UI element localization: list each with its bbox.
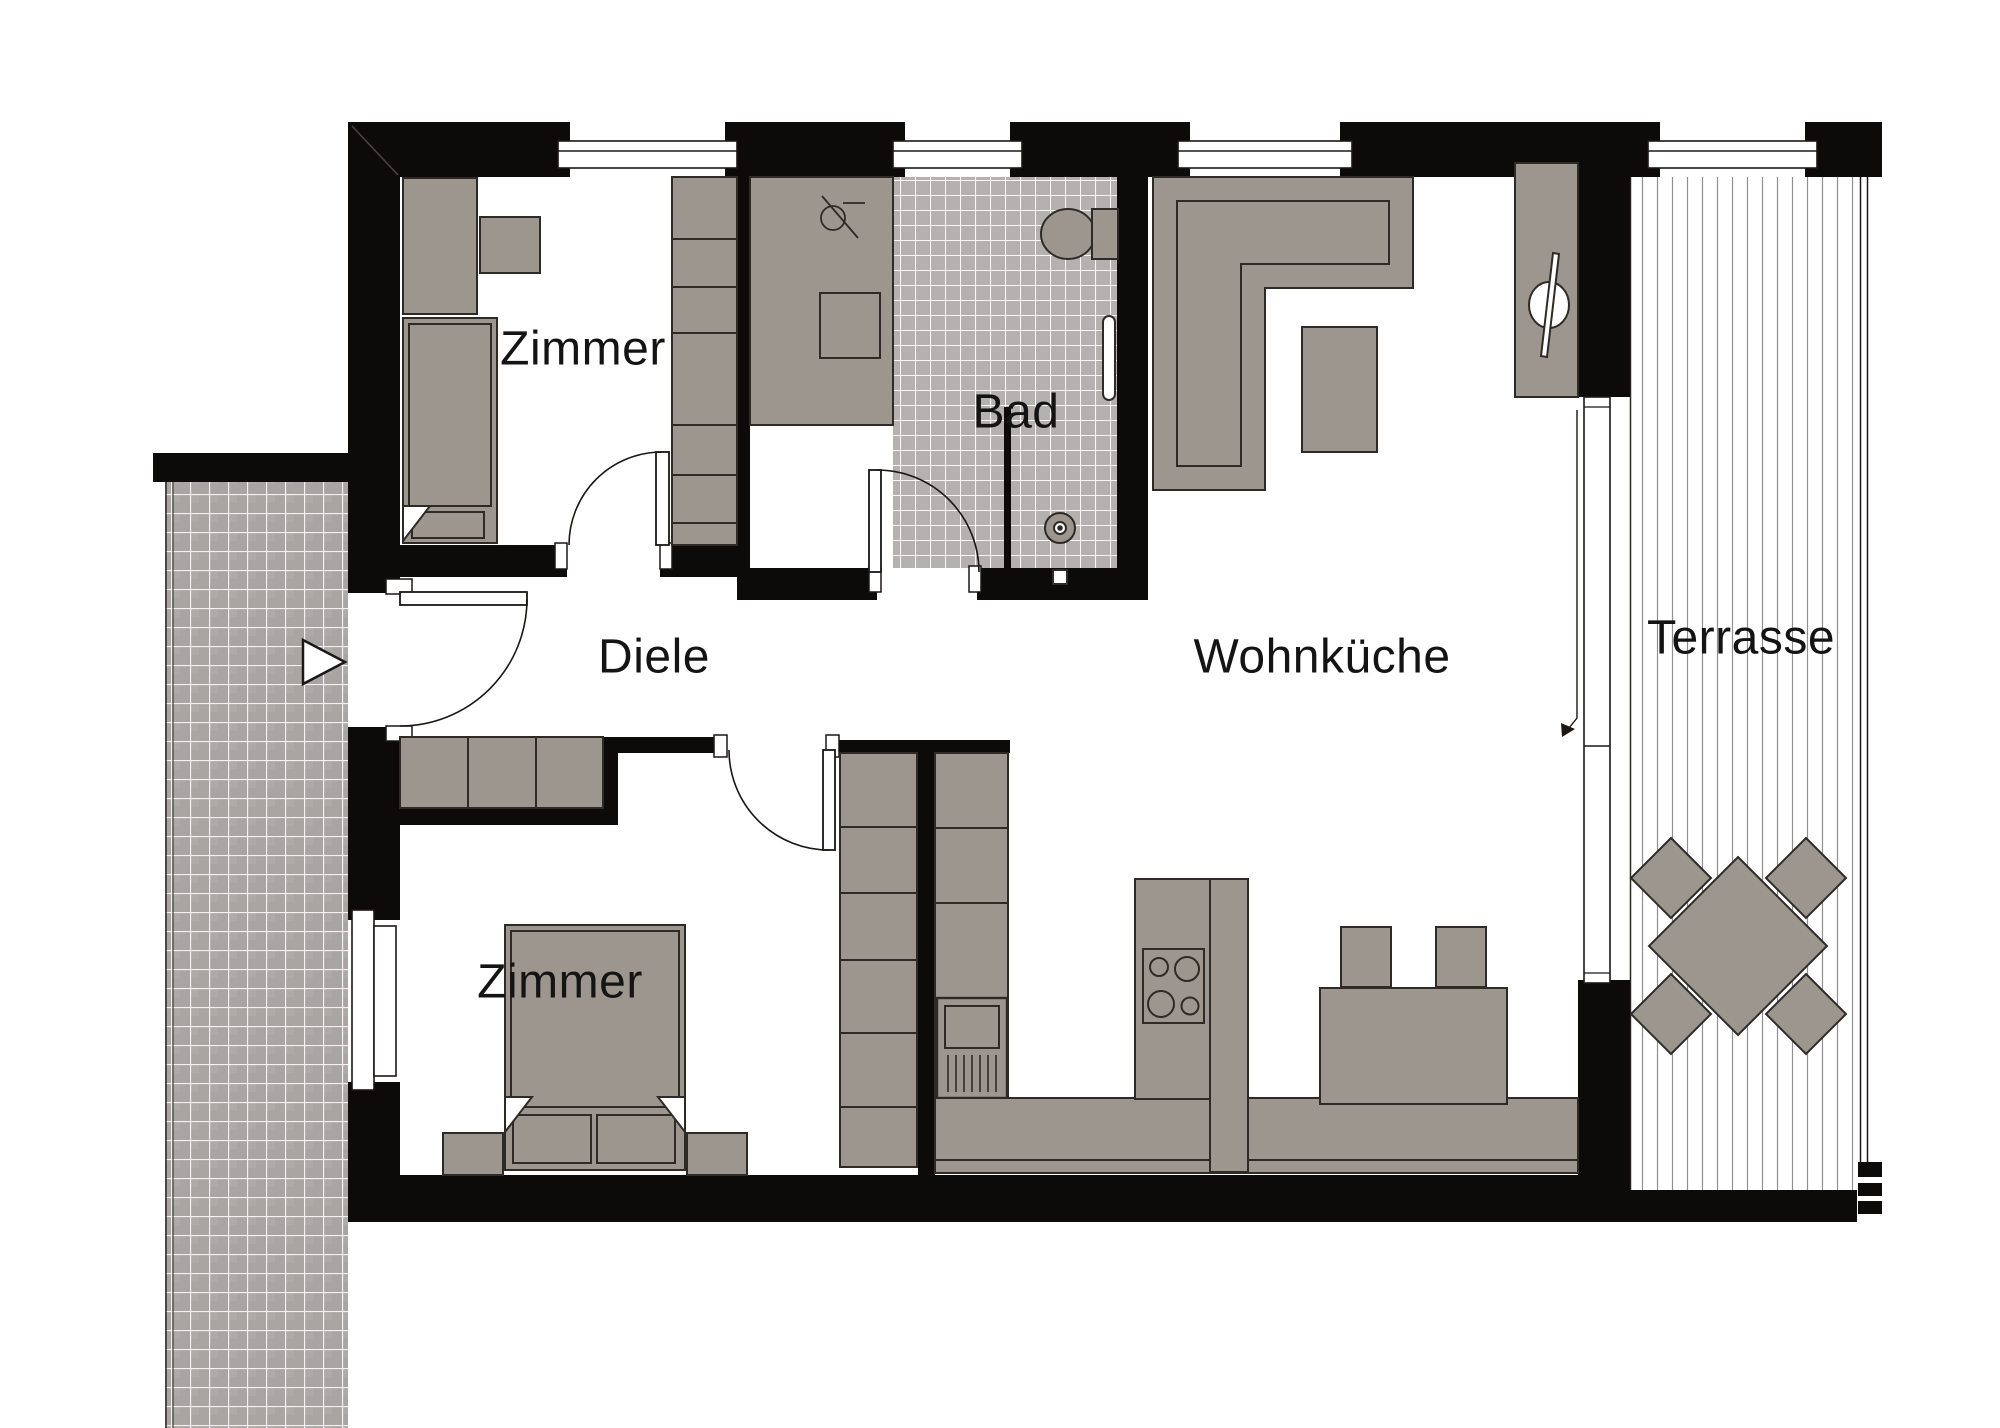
wall-zimmer-kitchen xyxy=(918,753,935,1175)
entrance-opening xyxy=(348,593,400,727)
wall-zimmer-bad xyxy=(737,177,750,575)
door-zimmer-bottom xyxy=(714,735,839,850)
railing-post xyxy=(1858,1183,1882,1196)
room-label-wohnkueche: Wohnküche xyxy=(1193,630,1450,685)
entrance-door-swing xyxy=(400,599,527,726)
window-zimmer-bottom xyxy=(352,910,396,1090)
window-bad xyxy=(893,141,1022,168)
door-swing xyxy=(569,452,662,545)
terrace-furniture xyxy=(1631,838,1846,1054)
sliding-panel xyxy=(1584,397,1610,983)
nightstand xyxy=(687,1133,747,1175)
room-label-diele: Diele xyxy=(598,630,710,685)
railing-post xyxy=(1858,1201,1882,1214)
door-leaf xyxy=(823,750,835,850)
wall-diele-bottom-left xyxy=(603,737,720,753)
wall-bad-right xyxy=(1117,177,1148,600)
floor-plan: Zimmer Bad Diele Wohnküche Terrasse Zimm… xyxy=(0,0,2000,1428)
door-opening-zimmer-top xyxy=(567,545,660,577)
wall-bottom xyxy=(348,1175,1630,1222)
single-bed xyxy=(403,318,497,543)
wall-niche-bottom xyxy=(400,808,618,825)
room-label-zimmer-bottom: Zimmer xyxy=(477,955,643,1010)
dining-chair xyxy=(1436,927,1486,987)
toilet xyxy=(1041,209,1118,259)
entrance-door xyxy=(386,579,527,741)
access-corridor-floor xyxy=(165,482,348,1428)
vanity-counter xyxy=(750,177,893,425)
window-terrasse xyxy=(1648,141,1817,168)
floor-plan-drawing xyxy=(0,0,2000,1428)
terrace-railing xyxy=(1858,177,1882,1214)
dining-table xyxy=(1320,988,1507,1104)
room-label-terrasse: Terrasse xyxy=(1647,611,1835,666)
wall-terrace-bottom xyxy=(1630,1190,1857,1222)
tv-sideboard xyxy=(1515,163,1578,397)
wall-terrace-top xyxy=(1578,163,1630,397)
dining-set xyxy=(1320,927,1507,1104)
corridor-tiles xyxy=(165,482,348,1428)
dining-chair xyxy=(1341,927,1391,987)
towel-rail xyxy=(1103,316,1115,400)
wall-diele-bottom-right xyxy=(838,740,1010,753)
door-leaf xyxy=(656,452,669,545)
slide-direction-arrow xyxy=(1565,410,1577,733)
kitchen-counter xyxy=(935,1098,1578,1173)
wall-terrace-bottom-corner xyxy=(1578,980,1630,1222)
window-zimmer-top xyxy=(558,141,737,168)
door-stop xyxy=(1053,570,1067,584)
door-leaf xyxy=(869,470,881,572)
room-label-zimmer-top: Zimmer xyxy=(500,322,666,377)
railing-post xyxy=(1858,1162,1882,1177)
dresser xyxy=(403,178,477,314)
hall-sideboard xyxy=(400,737,603,808)
window-wohnkueche xyxy=(1178,141,1352,168)
wardrobe-zimmer-top xyxy=(672,177,737,545)
room-label-bad: Bad xyxy=(973,385,1060,440)
coffee-table xyxy=(1302,327,1377,452)
terrace-sliding-door xyxy=(1561,397,1610,983)
chair xyxy=(480,217,540,273)
entrance-door-leaf xyxy=(400,592,527,605)
wall-corridor-head xyxy=(153,453,348,482)
shower-drain-icon xyxy=(1045,513,1075,543)
furniture-diele xyxy=(400,737,603,808)
door-opening-bad xyxy=(877,568,977,600)
nightstand xyxy=(443,1133,503,1175)
kitchen-tall-units xyxy=(935,753,1008,1098)
door-swing xyxy=(729,750,829,850)
wardrobe-zimmer-bottom xyxy=(840,753,917,1167)
